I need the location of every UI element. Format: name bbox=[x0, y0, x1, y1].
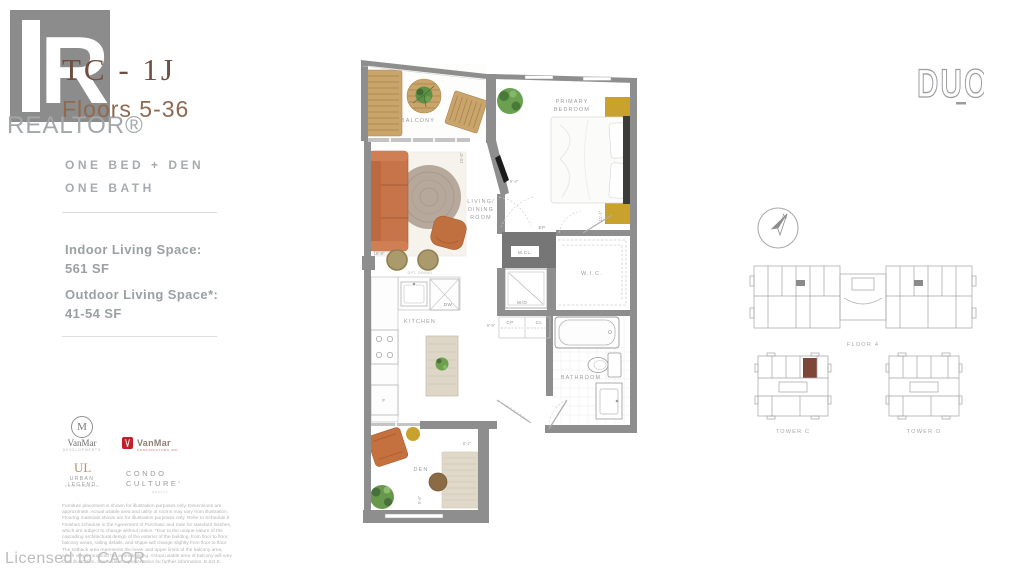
cl-label: CL bbox=[536, 320, 543, 325]
den-plant bbox=[370, 485, 394, 509]
kitchen-label: KITCHEN bbox=[404, 319, 436, 325]
kitchen-island bbox=[426, 336, 458, 396]
compass-icon: N bbox=[752, 202, 804, 254]
den-label: DEN bbox=[414, 467, 429, 473]
mcl-label: M.CL. bbox=[518, 250, 532, 255]
config-bath: ONE BATH bbox=[65, 177, 204, 200]
bathroom-label: BATHROOM bbox=[561, 375, 601, 381]
balcony-bench bbox=[365, 70, 402, 136]
dim-den-h: 5'-6" bbox=[417, 495, 422, 504]
vanmar-name: VanMar bbox=[64, 438, 100, 448]
outdoor-label: Outdoor Living Space*: bbox=[65, 285, 218, 304]
keyplan-tower-d: TOWER D bbox=[884, 350, 964, 438]
duo-wordmark: DUO bbox=[917, 62, 984, 106]
bathtub bbox=[555, 317, 619, 348]
dim-living-h: 15'-0" bbox=[459, 152, 464, 163]
highlighted-unit bbox=[803, 358, 817, 378]
wd-label: W/D bbox=[517, 300, 527, 305]
bedroom-plant bbox=[497, 88, 523, 114]
unit-config: ONE BED + DEN ONE BATH bbox=[65, 154, 204, 200]
duo-underline bbox=[956, 102, 966, 105]
keyplan-floor-label: FLOOR 4 bbox=[847, 342, 879, 348]
den-ottoman bbox=[406, 427, 420, 441]
opt-dining-label: OPT. DINING bbox=[408, 271, 433, 275]
dim-hall: 9'-9" bbox=[487, 323, 496, 328]
indoor-label: Indoor Living Space: bbox=[65, 240, 202, 259]
developer-logos: M VanMar DEVELOPMENTS VanMar CONSTRUCTOR… bbox=[60, 414, 250, 506]
keyplan-tower-c: TOWER C bbox=[753, 350, 833, 438]
bedroom-label-1: PRIMARY bbox=[556, 99, 589, 105]
sofa bbox=[369, 151, 408, 251]
vanmar-sub: DEVELOPMENTS bbox=[60, 448, 104, 452]
vanmar-red-sub: CONSTRUCTORS INC. bbox=[137, 448, 179, 452]
tower-c-label: TOWER C bbox=[776, 429, 811, 435]
outdoor-space: Outdoor Living Space*: 41-54 SF bbox=[65, 285, 218, 323]
condo-culture-sub: REALTY bbox=[152, 490, 168, 494]
floorplan-sheet: R REALTOR® TC - 1J Floors 5-36 ONE BED +… bbox=[0, 0, 1024, 575]
config-bed: ONE BED + DEN bbox=[65, 154, 204, 177]
indoor-value: 561 SF bbox=[65, 259, 202, 278]
dw-label: DW bbox=[444, 302, 453, 307]
indoor-space: Indoor Living Space: 561 SF bbox=[65, 240, 202, 278]
wic-label: W.I.C. bbox=[581, 271, 603, 277]
bedroom-label-2: BEDROOM bbox=[554, 107, 590, 113]
living-label-3: ROOM bbox=[470, 215, 492, 221]
living-label-2: DINING bbox=[468, 207, 494, 213]
fridge-label: F bbox=[382, 398, 385, 403]
outdoor-value: 41-54 SF bbox=[65, 304, 218, 323]
dim-bed-h: 11'-1" bbox=[598, 210, 603, 221]
floorplan-drawing: BALCONY PRIMARY BEDROOM LIVING/ DINING R… bbox=[350, 50, 650, 555]
living-label-1: LIVING/ bbox=[467, 199, 495, 205]
condo-culture-line1: CONDO bbox=[126, 469, 166, 478]
dim-den-w: 8'-2" bbox=[463, 441, 472, 446]
den-stool bbox=[429, 473, 447, 491]
keyplan-floor: FLOOR 4 bbox=[748, 252, 978, 352]
sink bbox=[401, 282, 427, 306]
compass-north-label: N bbox=[782, 214, 788, 221]
divider-bottom bbox=[62, 336, 217, 337]
vanmar-red-icon bbox=[122, 437, 133, 449]
balcony-label: BALCONY bbox=[401, 118, 435, 124]
urban-legend-monogram-icon: UL bbox=[74, 460, 91, 476]
duo-logo: DUO bbox=[914, 55, 984, 115]
dim-bed-w: 9'-4" bbox=[510, 179, 519, 184]
balcony-table bbox=[407, 79, 441, 113]
ep-label: EP bbox=[539, 225, 546, 230]
cp-label: CP bbox=[506, 320, 513, 325]
urban-legend-sub: DEVELOPMENTS bbox=[56, 484, 108, 488]
tower-d-label: TOWER D bbox=[907, 429, 942, 435]
stove bbox=[371, 330, 398, 364]
plan-code: TC - 1J bbox=[62, 52, 176, 88]
condo-culture-line2: CULTURE' bbox=[126, 479, 182, 488]
vanmar-monogram-icon: M bbox=[71, 416, 93, 438]
plan-floors: Floors 5-36 bbox=[62, 96, 189, 123]
vanity-sink bbox=[596, 383, 622, 419]
divider-top bbox=[62, 212, 217, 213]
license-note: Licensed to CAOR bbox=[5, 550, 146, 568]
dim-living-w: 18'-9" bbox=[374, 251, 385, 256]
vanmar-red-name: VanMar bbox=[137, 438, 171, 448]
